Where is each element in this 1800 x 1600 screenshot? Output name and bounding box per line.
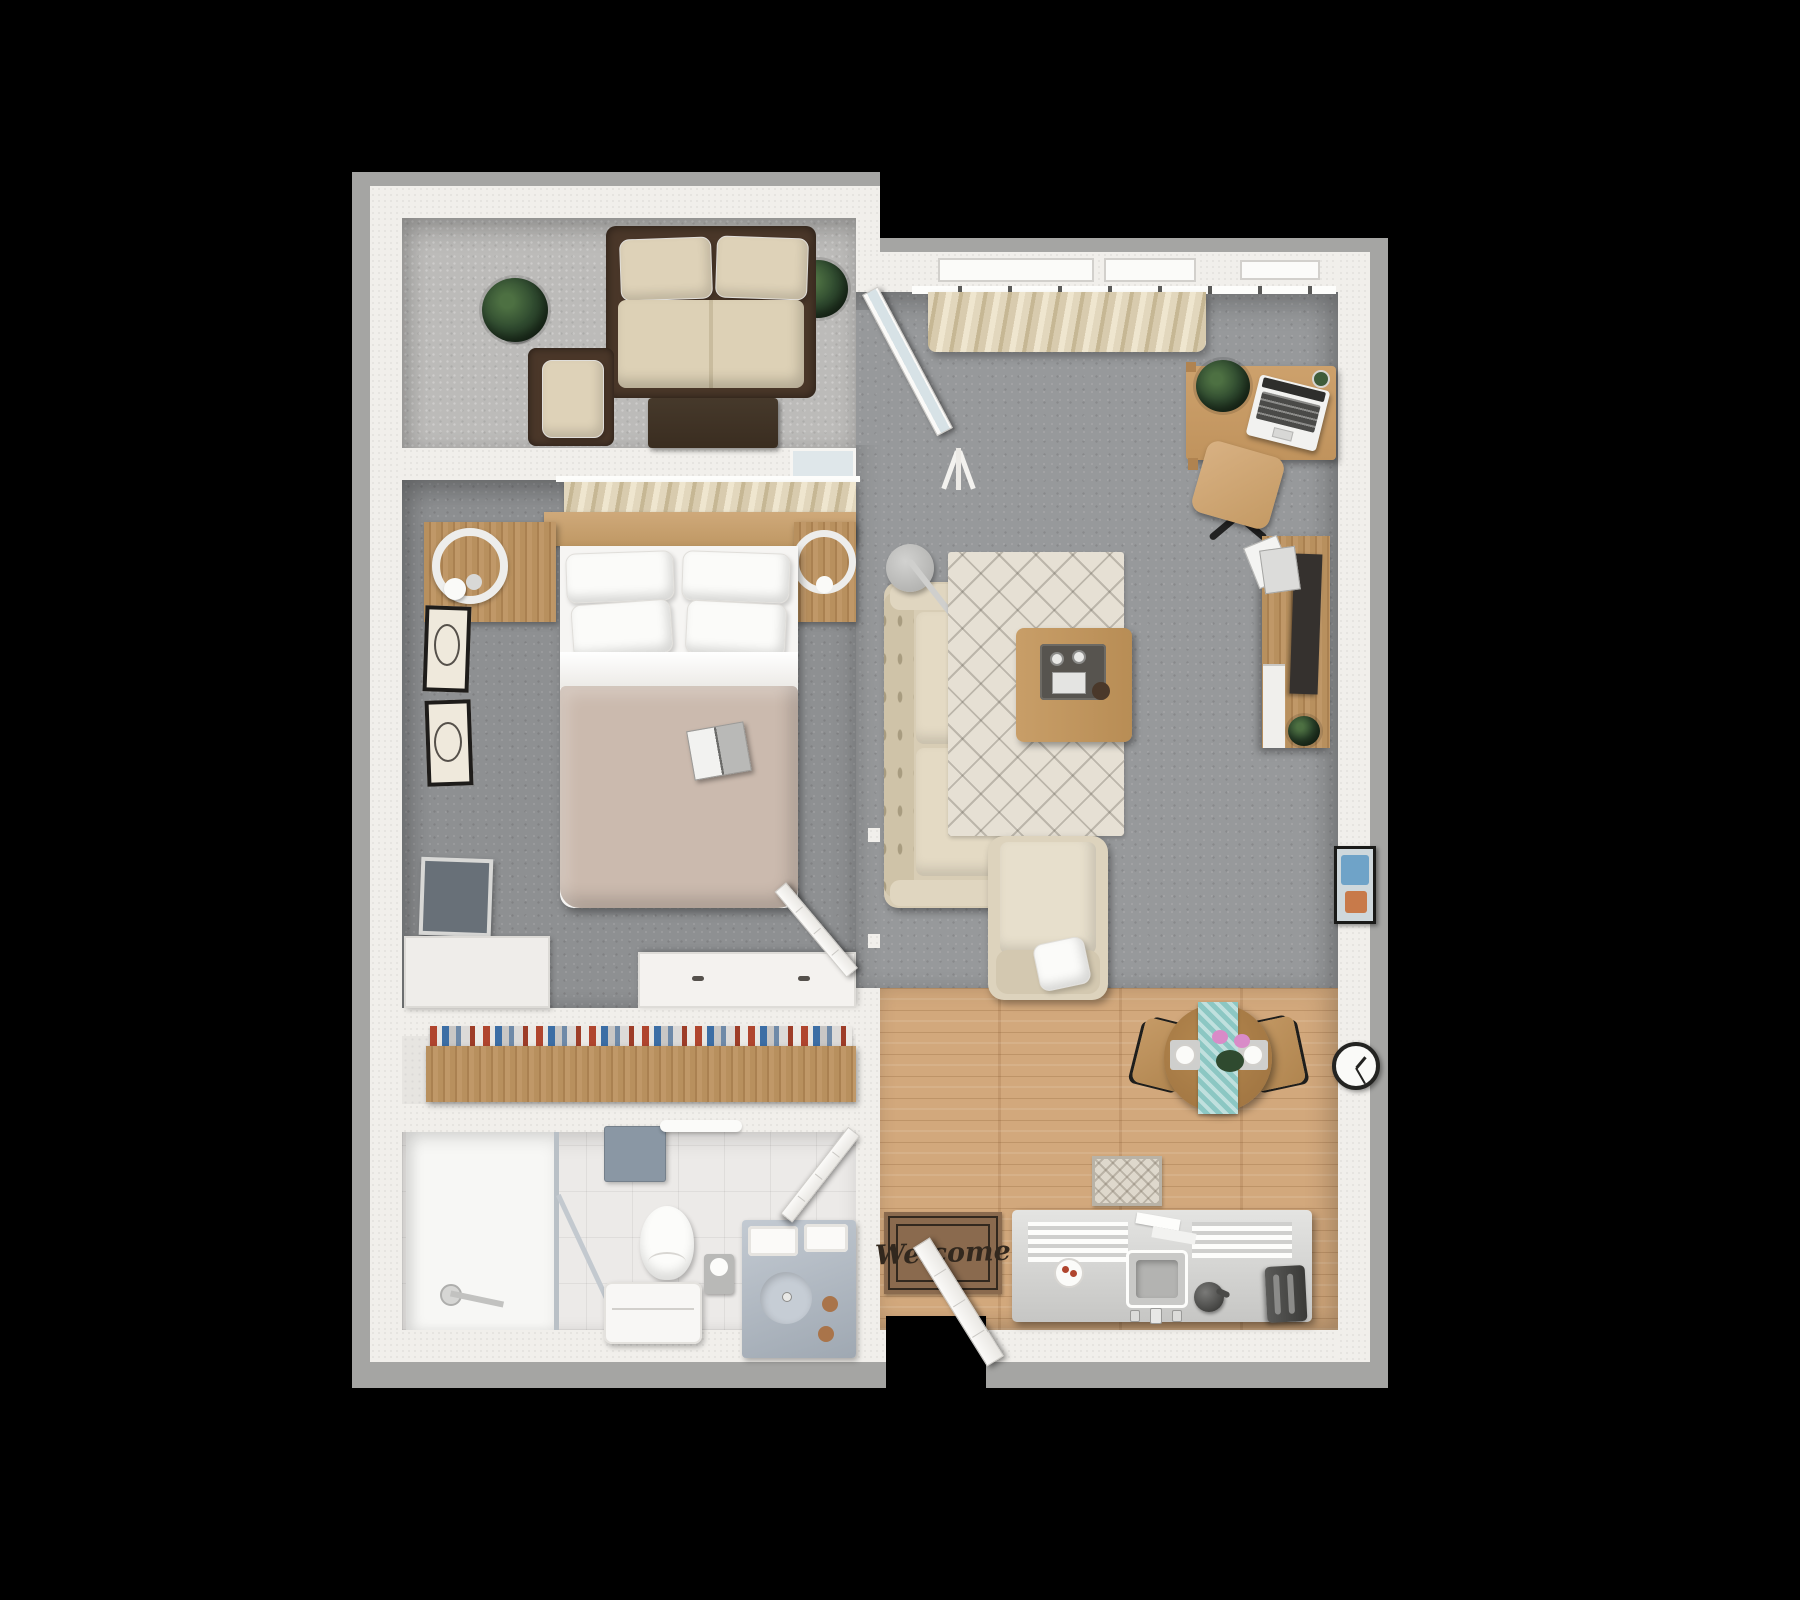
wall-shadow-top-right	[868, 238, 1388, 252]
plate-left	[1174, 1044, 1196, 1066]
wall-shadow-bottom	[352, 1362, 1388, 1388]
bath-bench	[604, 1282, 702, 1344]
vanity-bottle-2	[818, 1326, 834, 1342]
bed-pillow-4	[685, 599, 788, 658]
tray-card	[1052, 672, 1086, 694]
bedroom-wall-tv	[419, 857, 494, 937]
right-wall-art-blue	[1341, 855, 1369, 885]
closet-shoe-shelf	[426, 1046, 856, 1102]
wall-art-frame-1-motif	[434, 624, 460, 666]
desk-leg-2	[1186, 362, 1196, 372]
nightstand-right-lamp-globe	[816, 576, 833, 593]
flowers-leaves	[1216, 1050, 1244, 1072]
console-magazine-2	[1259, 546, 1301, 595]
clock-hand-minute	[1355, 1068, 1366, 1085]
bed-pillow-3	[570, 599, 674, 660]
bed-pillow-1	[565, 550, 675, 604]
counter-drainboard-left	[1028, 1222, 1128, 1262]
towel-bar	[660, 1120, 742, 1132]
wall-left	[370, 186, 402, 1362]
wall-mid-lower	[856, 972, 880, 1362]
wall-shadow-left	[352, 172, 370, 1388]
right-wall-art	[1334, 846, 1376, 924]
bedroom-dresser-handle-2	[798, 976, 810, 981]
toaster-slot-2	[1287, 1274, 1295, 1314]
armchair-cushion	[1000, 842, 1096, 954]
bed-pillow-2	[681, 550, 791, 604]
food-berry-2	[1070, 1270, 1077, 1277]
bedroom-door-jamb-bottom	[868, 934, 880, 948]
laptop-trackpad	[1272, 427, 1294, 442]
patio-loveseat-pillow-right	[715, 235, 809, 300]
toilet-paper-roll	[710, 1258, 728, 1276]
floor-plan-scene: Welcome	[0, 0, 1800, 1600]
vanity-bottle-1	[822, 1296, 838, 1312]
wall-top-patio	[370, 186, 880, 218]
wall-shadow-right	[1370, 238, 1388, 1388]
toaster-slot-1	[1273, 1274, 1281, 1314]
wall-clock	[1332, 1042, 1380, 1090]
flowers-pink-2	[1234, 1034, 1250, 1048]
counter-drainboard-right	[1192, 1222, 1292, 1258]
bedroom-dresser	[638, 952, 856, 1008]
tray-cup-2	[1072, 650, 1086, 664]
wall-bottom-right	[988, 1330, 1338, 1362]
desk-plant	[1196, 360, 1250, 412]
living-window-3	[1240, 260, 1320, 280]
open-book-on-bed	[686, 721, 752, 780]
shower-glass-panel	[554, 1132, 559, 1330]
coffee-table-bowl	[1092, 682, 1110, 700]
bath-bench-towel-line	[612, 1308, 694, 1310]
vanity-sink-left	[748, 1226, 798, 1256]
kettle	[1194, 1282, 1224, 1312]
wall-art-frame-2-motif	[434, 722, 462, 762]
vanity-sink-right	[804, 1224, 848, 1252]
desk-leg-1	[1188, 458, 1198, 470]
desk-succulent	[1312, 370, 1330, 388]
tripod-lamp-leg-3	[956, 448, 961, 490]
flowers-pink-1	[1212, 1030, 1228, 1044]
sofa-back	[884, 592, 914, 898]
tray-cup-1	[1050, 652, 1064, 666]
bedroom-door-jamb-top	[868, 828, 880, 842]
console-drawers	[1263, 664, 1285, 748]
kitchen-sink-basin	[1136, 1260, 1178, 1298]
kitchen-runner-rug	[1092, 1156, 1162, 1206]
plate-with-food	[1054, 1258, 1084, 1288]
living-floor-gap	[856, 310, 880, 445]
bed-blanket	[560, 686, 798, 908]
patio-loveseat-pillow-left	[619, 236, 713, 301]
nightstand-left-lamp-globe	[444, 578, 466, 600]
toaster	[1265, 1265, 1308, 1323]
living-curtains	[928, 292, 1206, 352]
sink-faucet-2	[1150, 1308, 1162, 1324]
sink-faucet-3	[1172, 1310, 1182, 1322]
bed-sheet-fold	[560, 652, 798, 688]
toilet-seat-line	[648, 1252, 686, 1272]
patio-loveseat-seat	[618, 300, 804, 388]
console-plant	[1288, 716, 1320, 746]
nightstand-left-ring-lamp	[432, 528, 508, 604]
food-berry-1	[1062, 1266, 1069, 1273]
right-wall-art-orange	[1345, 891, 1367, 913]
bedroom-dresser-handle-1	[692, 976, 704, 981]
sink-faucet-1	[1130, 1310, 1140, 1322]
wall-shadow-top-left	[352, 172, 880, 186]
patio-coffee-table	[648, 398, 778, 448]
living-window-2	[1104, 258, 1196, 282]
bath-wall-towel	[604, 1126, 666, 1182]
wall-right	[1338, 252, 1370, 1362]
living-window-1	[938, 258, 1094, 282]
patio-armchair-cushion	[542, 360, 604, 438]
bedroom-closet-step	[404, 936, 550, 1008]
patio-plant-1	[482, 278, 548, 342]
vanity-faucet	[782, 1292, 792, 1302]
nightstand-left-lamp-globe-2	[466, 574, 482, 590]
